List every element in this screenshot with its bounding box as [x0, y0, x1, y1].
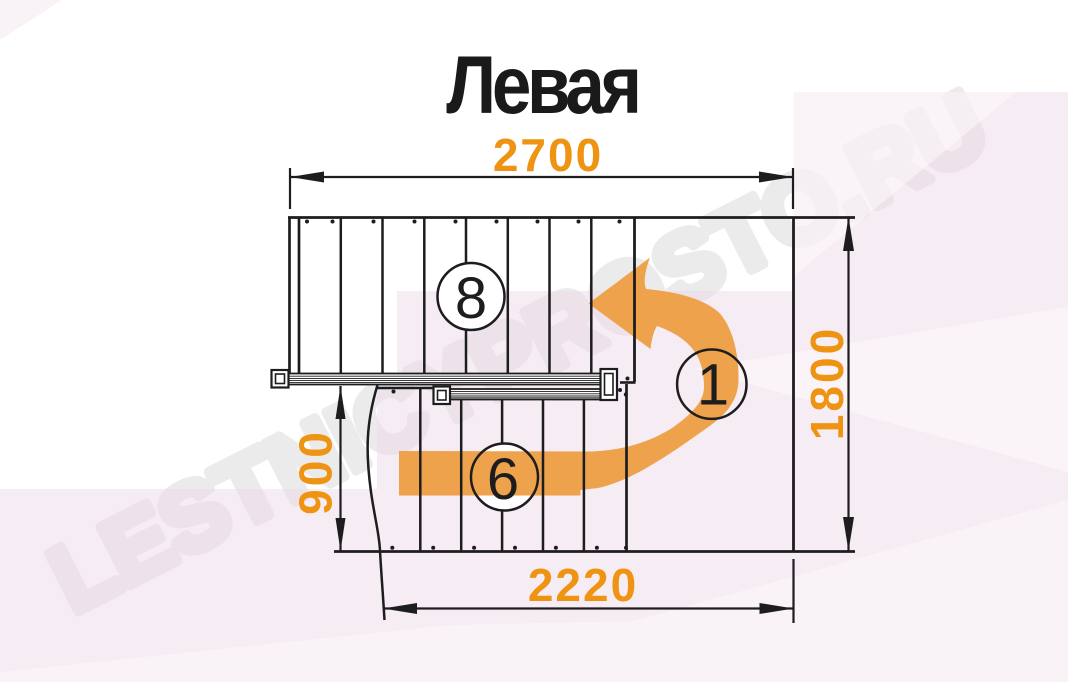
svg-text:8: 8	[455, 266, 487, 331]
svg-text:1: 1	[697, 353, 729, 418]
svg-text:6: 6	[487, 447, 519, 512]
svg-text:2220: 2220	[528, 559, 638, 611]
svg-text:1800: 1800	[801, 326, 853, 440]
svg-text:900: 900	[290, 429, 342, 515]
svg-text:2700: 2700	[493, 129, 603, 181]
svg-text:Левая: Левая	[446, 41, 637, 132]
